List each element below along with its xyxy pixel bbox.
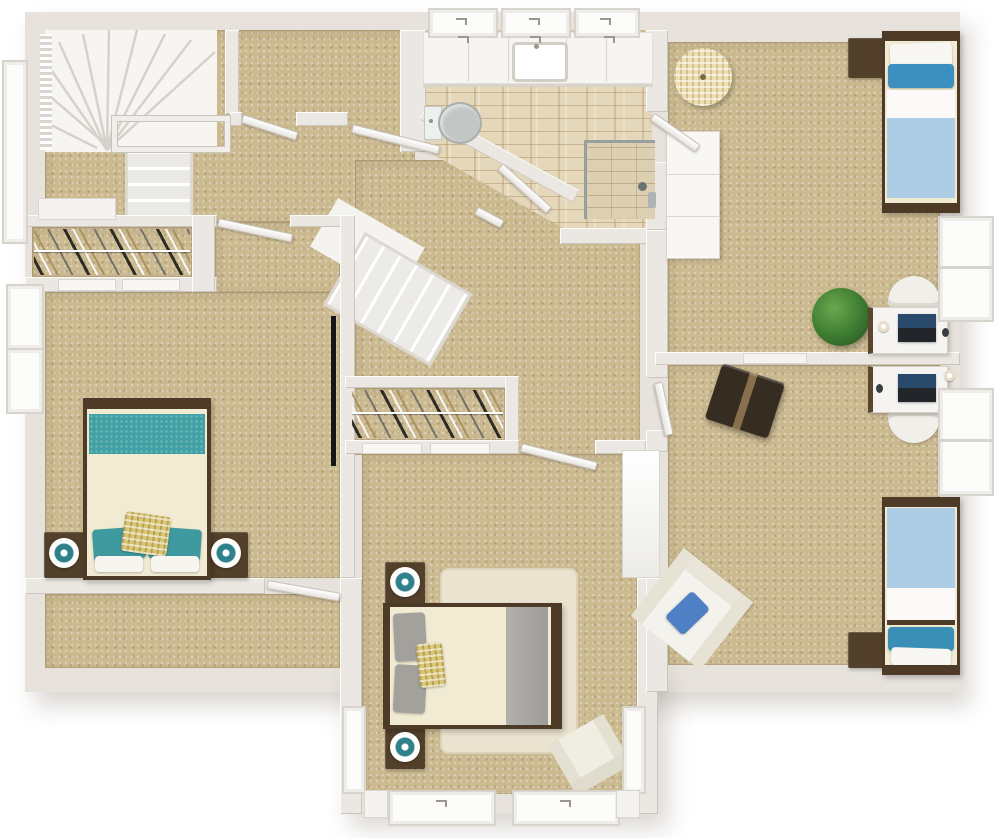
- window-bottom-right: [512, 790, 620, 826]
- stairs-down-run: [125, 152, 193, 218]
- pouf-button: [700, 74, 706, 80]
- lamp-bed1-left: [49, 538, 79, 568]
- bed3-footboard: [885, 203, 957, 210]
- window-bedroom2-left: [342, 706, 366, 794]
- hall-closet-door-panel-1: [58, 279, 116, 291]
- window-bottom-cap-left: [364, 790, 388, 818]
- window-latch-bath-3: [600, 18, 611, 25]
- bed4-headboard: [885, 665, 957, 672]
- vanity-seam-2: [508, 34, 509, 82]
- lamp-bed2-top: [390, 567, 420, 597]
- tv-wall-mounted: [331, 316, 336, 466]
- bed1-white-pillow-right: [151, 556, 199, 572]
- walk-in-closet-rod: [352, 412, 503, 414]
- hall-closet-clothes: [34, 229, 190, 275]
- bed3-headboard: [885, 34, 957, 41]
- dresser-seam-2: [667, 216, 719, 217]
- half-wall-ledge: [38, 198, 116, 220]
- mug-bedroom3: [878, 321, 889, 332]
- wall-bathroom-bottom: [560, 228, 652, 244]
- shower-valve: [648, 192, 656, 208]
- window-bay-right-top-divider: [940, 266, 992, 269]
- mouse-bedroom4: [876, 384, 883, 393]
- window-latch-bottom-left: [436, 800, 447, 807]
- bed4-footboard: [885, 500, 957, 507]
- window-latch-bottom-right: [560, 800, 571, 807]
- open-passage-threshold: [622, 450, 660, 578]
- window-bay-right-bottom-divider: [940, 439, 992, 442]
- walk-in-closet-door-panel-2: [430, 443, 490, 454]
- plant-potted: [812, 288, 870, 346]
- walk-in-closet-door-panel-1: [362, 443, 422, 454]
- bed2-gray-double: [383, 603, 562, 729]
- window-latch-bath-2: [529, 18, 540, 25]
- bed3-twin: [882, 31, 960, 213]
- bed2-gray-runner: [506, 607, 548, 725]
- bed1-footboard: [87, 402, 207, 409]
- mouse-bedroom3: [942, 328, 949, 337]
- vanity-handle-3: [604, 36, 615, 43]
- vanity-handle-1: [458, 36, 469, 43]
- bed2-accent-pillow: [416, 642, 446, 688]
- wall-closet-bottom: [25, 277, 217, 292]
- window-latch-bath-1: [456, 18, 467, 25]
- hall-closet-door-panel-2: [122, 279, 180, 291]
- mug-bedroom4: [944, 370, 955, 381]
- wall-closet-stub: [192, 215, 215, 292]
- nightstand-bed3: [848, 38, 886, 78]
- bed1-teal-runner: [89, 414, 205, 454]
- shower-head: [638, 182, 647, 191]
- wall-right-divider-opening: [743, 353, 807, 364]
- bed1-white-pillow-left: [95, 556, 143, 572]
- lamp-bed1-right: [211, 538, 241, 568]
- window-bay-right-top: [938, 216, 994, 322]
- wall-bedroom1-bottom: [25, 578, 265, 594]
- laptop-bedroom3: [898, 314, 936, 342]
- wall-nook-bottom-mid: [296, 112, 348, 126]
- bed3-sheet-band: [887, 90, 955, 118]
- dresser-seam-1: [667, 174, 719, 175]
- bed4-sheet-band: [887, 588, 955, 620]
- floor-storage-room: [45, 594, 340, 668]
- vanity-handle-2: [530, 36, 541, 43]
- bed1-teal-double: [83, 398, 211, 580]
- window-bedroom2-right: [622, 706, 646, 794]
- window-bedroom1-lower: [6, 348, 44, 414]
- window-bay-right-bottom: [938, 388, 994, 496]
- stair-stringer: [40, 34, 52, 150]
- bed1-accent-pillow: [120, 511, 171, 557]
- toilet-bowl: [438, 102, 482, 144]
- walk-in-closet-clothes: [352, 390, 503, 438]
- wall-nook-bottom-left: [230, 112, 242, 126]
- bed4-twin: [882, 497, 960, 675]
- laptop-bedroom4: [898, 374, 936, 402]
- wall-center-closet-top: [345, 376, 519, 388]
- nightstand-bed4: [848, 632, 884, 668]
- floor-plan: [0, 0, 1000, 838]
- bed2-footboard: [551, 607, 558, 725]
- bed4-rail: [887, 620, 955, 625]
- vanity-sink: [512, 42, 568, 82]
- stair-railing: [112, 116, 230, 152]
- window-bedroom1-upper: [6, 284, 44, 350]
- bed3-blue-pillow: [888, 64, 954, 88]
- bed4-blanket: [887, 508, 955, 588]
- window-bottom-cap-right: [616, 790, 640, 818]
- hall-closet-rod: [34, 250, 190, 252]
- lamp-bed2-bottom: [390, 732, 420, 762]
- toilet-flush-button: [429, 119, 433, 123]
- window-stairwell: [2, 60, 28, 244]
- shower-enclosure: [584, 140, 655, 219]
- window-bottom-left: [388, 790, 496, 826]
- wall-stair-nook-divider: [225, 30, 239, 114]
- sink-faucet: [534, 44, 539, 49]
- bed3-blanket: [887, 118, 955, 198]
